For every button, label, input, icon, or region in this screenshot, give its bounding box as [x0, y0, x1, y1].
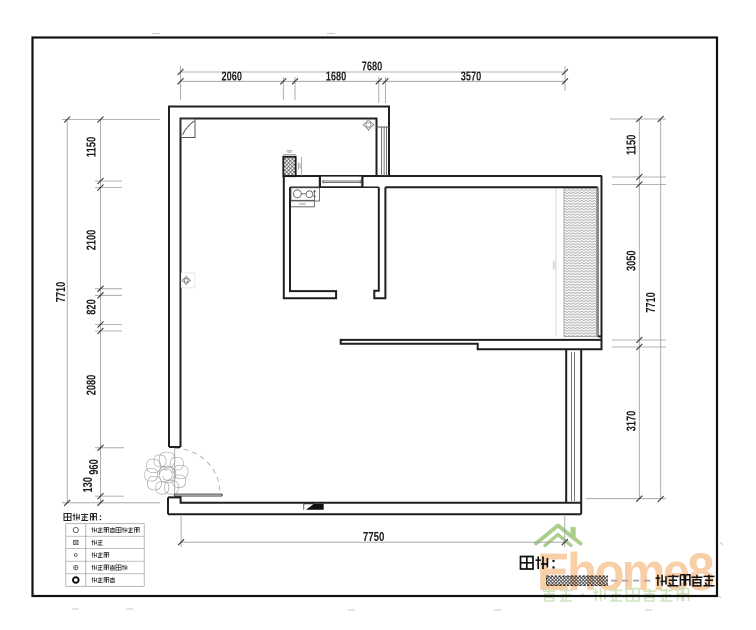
svg-text:7710: 7710 — [643, 292, 658, 313]
svg-text:3170: 3170 — [624, 411, 639, 432]
svg-text:2080: 2080 — [83, 375, 98, 396]
svg-text:2060: 2060 — [222, 68, 243, 83]
svg-text:960: 960 — [86, 459, 101, 475]
svg-text:7750: 7750 — [363, 529, 385, 544]
svg-text:130: 130 — [80, 477, 95, 493]
svg-text:Ehome8: Ehome8 — [537, 542, 713, 601]
svg-text:3050: 3050 — [624, 250, 639, 271]
svg-text:7680: 7680 — [362, 59, 383, 74]
svg-text:7710: 7710 — [53, 282, 68, 303]
svg-text:1150: 1150 — [624, 135, 639, 156]
svg-text:1680: 1680 — [326, 68, 347, 83]
svg-text:2100: 2100 — [83, 230, 98, 251]
svg-text:1150: 1150 — [83, 137, 98, 158]
svg-text:3570: 3570 — [461, 68, 482, 83]
svg-text:820: 820 — [83, 299, 98, 315]
